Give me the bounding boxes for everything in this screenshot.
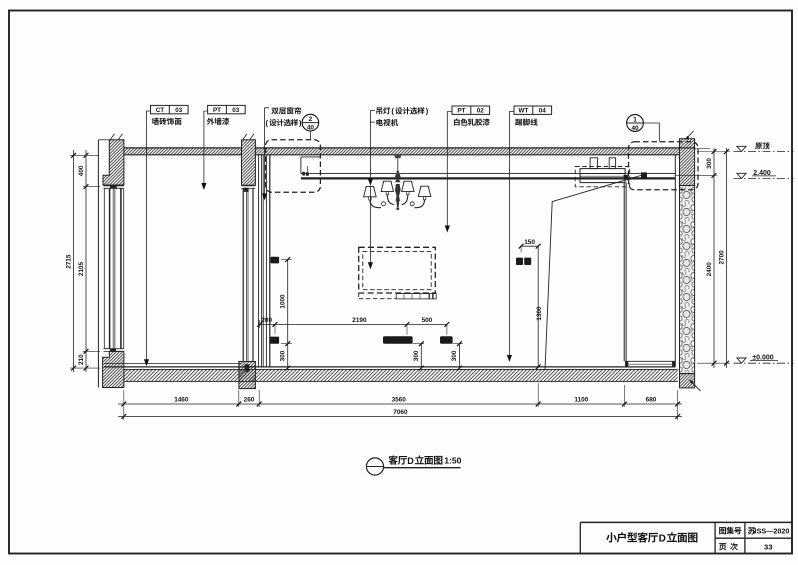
svg-text:33: 33 <box>764 542 772 551</box>
svg-text:680: 680 <box>646 397 657 404</box>
svg-text:260: 260 <box>244 397 255 404</box>
svg-text:300: 300 <box>413 350 420 361</box>
svg-text:2715: 2715 <box>66 254 73 269</box>
svg-text:PT: PT <box>457 107 465 114</box>
svg-text:02: 02 <box>477 107 485 114</box>
svg-text:03: 03 <box>175 107 183 114</box>
svg-text:1300: 1300 <box>536 306 543 321</box>
svg-text:JSS—2020: JSS—2020 <box>753 527 790 536</box>
svg-text:300: 300 <box>279 350 286 361</box>
svg-text:200: 200 <box>261 317 272 324</box>
svg-text:2700: 2700 <box>719 250 726 265</box>
svg-text:2105: 2105 <box>78 261 85 276</box>
svg-text:150: 150 <box>524 239 535 246</box>
svg-text:1000: 1000 <box>279 294 286 309</box>
svg-text:D: D <box>659 534 666 545</box>
svg-text:400: 400 <box>78 165 85 176</box>
svg-text:1:50: 1:50 <box>444 456 461 466</box>
svg-text:1100: 1100 <box>574 397 588 404</box>
svg-text:2400: 2400 <box>706 262 713 277</box>
svg-text:40: 40 <box>307 125 315 132</box>
svg-text:1460: 1460 <box>174 397 189 404</box>
svg-text:500: 500 <box>422 317 433 324</box>
svg-text:PT: PT <box>213 107 221 114</box>
svg-text:210: 210 <box>78 354 85 365</box>
svg-text:04: 04 <box>539 107 547 114</box>
svg-text:2190: 2190 <box>352 317 367 324</box>
svg-text:300: 300 <box>451 350 458 361</box>
svg-text:2: 2 <box>309 116 313 123</box>
svg-text:300: 300 <box>706 158 713 169</box>
svg-text:40: 40 <box>631 125 639 132</box>
svg-text:CT: CT <box>156 107 165 114</box>
svg-text:3560: 3560 <box>392 397 407 404</box>
svg-text:7060: 7060 <box>393 409 408 416</box>
svg-text:1: 1 <box>633 116 637 123</box>
svg-text:WT: WT <box>519 107 529 114</box>
svg-text:03: 03 <box>232 107 240 114</box>
svg-text:D: D <box>407 456 414 466</box>
